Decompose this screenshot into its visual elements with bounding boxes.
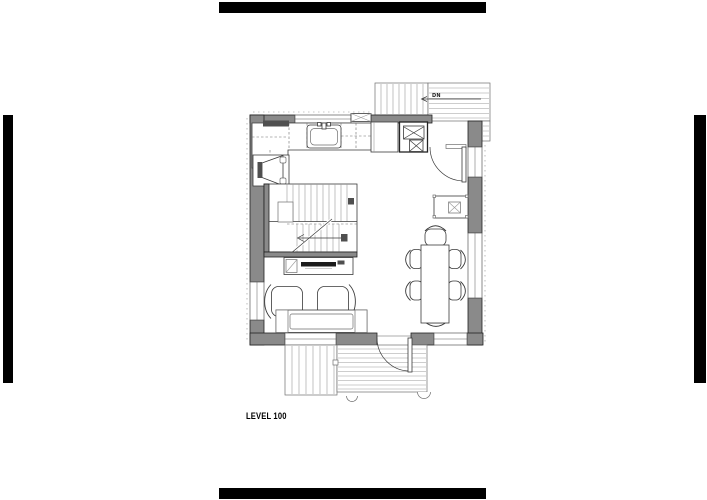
range-hood-shelf (263, 121, 289, 127)
stair-direction-label: DN (432, 93, 441, 99)
wood-stove (253, 155, 289, 186)
window-left (250, 282, 264, 320)
media-console (284, 258, 353, 275)
deck-post (333, 360, 338, 365)
dryer-icon (410, 140, 424, 152)
sideboard (433, 195, 468, 218)
window-bottom-right (434, 333, 467, 345)
wall-vent (351, 114, 371, 122)
stairs (264, 184, 357, 257)
faucet-spout-icon (322, 123, 326, 129)
window-right-upper (468, 147, 482, 177)
washer-icon (404, 126, 425, 139)
footing (347, 396, 358, 402)
dining-chair (425, 226, 446, 246)
newel-post (348, 198, 354, 205)
dining-table (421, 245, 449, 323)
door-leaf (408, 338, 412, 372)
tv (301, 262, 336, 267)
faucet-knob-icon (318, 123, 322, 127)
deck-stairs (285, 345, 337, 395)
level-label: LEVEL 100 (246, 411, 287, 422)
footing (418, 392, 431, 399)
refrigerator (371, 122, 398, 152)
window-bottom-left (285, 333, 336, 345)
sofa (276, 310, 367, 333)
floor-plan-svg: DN (0, 0, 707, 500)
kitchen-sink (307, 123, 341, 149)
window-kitchen (295, 115, 351, 123)
door-leaf (462, 147, 466, 182)
media-box (338, 261, 345, 265)
speaker-icon (286, 260, 297, 273)
faucet-knob-icon (327, 123, 331, 127)
drawing-sheet: DN (0, 0, 707, 500)
laundry-closet (400, 122, 428, 152)
half-wall (264, 252, 357, 257)
window-right-dining (468, 233, 482, 298)
